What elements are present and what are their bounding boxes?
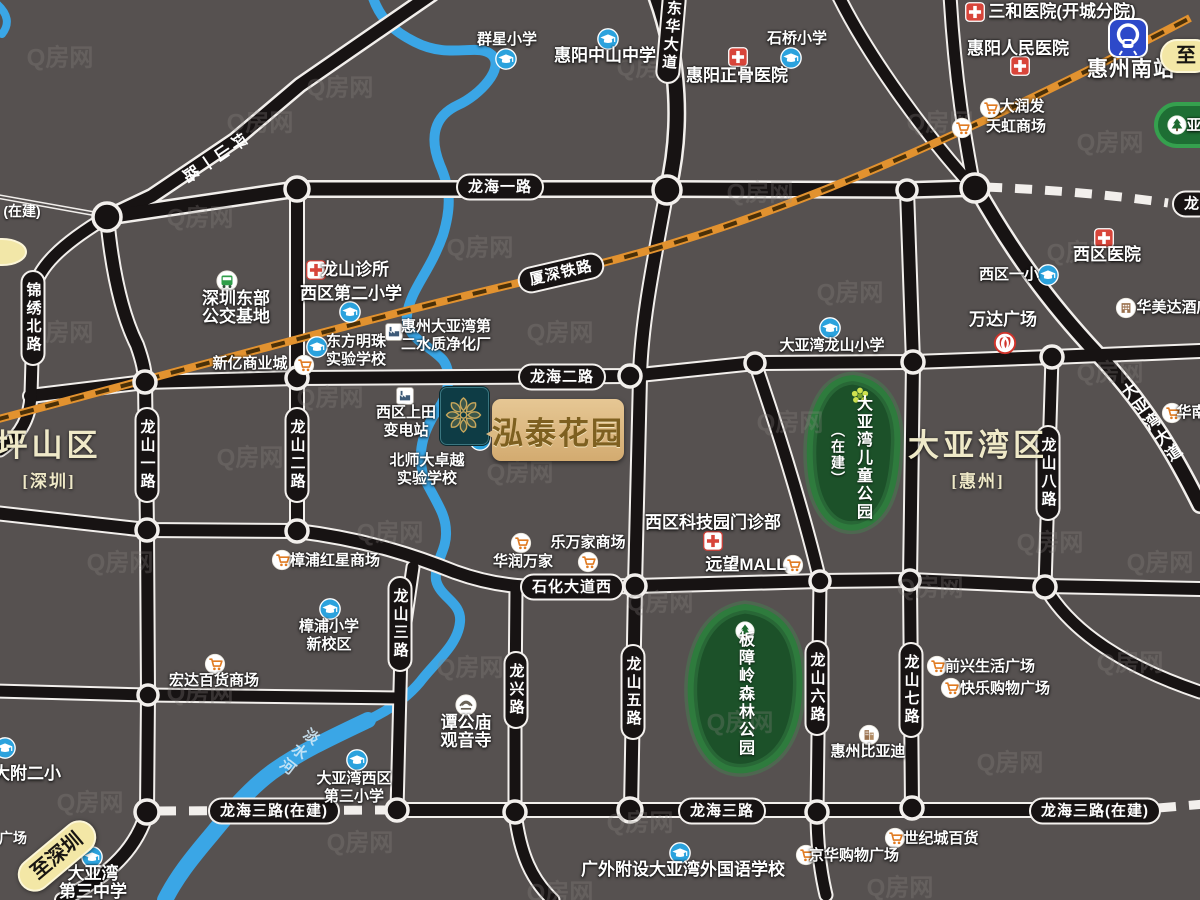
map-text-fragment: 广场: [0, 828, 27, 848]
project-bubble: 泓泰花园: [492, 399, 624, 461]
watermark: Q房网: [307, 68, 374, 103]
school-icon: [0, 737, 16, 759]
watermark: Q房网: [57, 783, 124, 818]
park-label: 亚: [1186, 117, 1200, 135]
tree-icon: [1167, 115, 1187, 135]
watermark: Q房网: [757, 403, 824, 438]
direction-banner: 至: [1160, 39, 1200, 73]
poi-label: 北师大卓越实验学校: [389, 452, 464, 488]
road-label: 坪山一路: [174, 125, 250, 187]
road-label: 龙兴路: [504, 651, 529, 729]
school-icon: [495, 48, 517, 70]
poi-label: 大附二小: [0, 765, 61, 783]
poi-label: 大润发: [999, 98, 1044, 116]
poi-label: 快乐购物广场: [960, 680, 1050, 698]
hospital-icon: [965, 2, 986, 23]
watermark: Q房网: [627, 583, 694, 618]
wanda-icon: [994, 332, 1017, 355]
poi-label: 群星小学: [477, 31, 537, 49]
poi-label: 大亚湾西区第三小学: [316, 770, 391, 806]
poi-label: 华美达酒店: [1136, 299, 1200, 317]
poi-label: 西区科技园门诊部: [645, 514, 781, 532]
poi-label: 龙山诊所: [321, 261, 389, 279]
railway-station-icon: [1108, 18, 1148, 58]
watermark: Q房网: [327, 823, 394, 858]
road-label: 东华大道: [654, 0, 687, 85]
road-label: 龙: [1172, 191, 1200, 218]
watermark: Q房网: [447, 228, 514, 263]
road-label: 锦绣北路: [21, 270, 46, 366]
road-label: 大亚湾大道: [1113, 378, 1187, 470]
watermark: Q房网: [727, 173, 794, 208]
poi-label: 石桥小学: [767, 30, 827, 48]
park-label-note: （在建）: [828, 423, 848, 487]
poi-label: 万达广场: [969, 311, 1037, 329]
poi-label: 樟浦小学新校区: [299, 618, 359, 654]
poi-label: 西区医院: [1073, 246, 1141, 264]
road-label: 龙山五路: [621, 644, 646, 740]
poi-label: 广外附设大亚湾外国语学校: [581, 861, 785, 879]
poi-label: 华南城: [1176, 404, 1200, 422]
poi-label: 前兴生活广场: [945, 658, 1035, 676]
watermark: Q房网: [977, 743, 1044, 778]
park-label: 板障岭森林公园: [732, 631, 756, 757]
cart-icon: [941, 678, 962, 699]
poi-label: 天虹商场: [986, 118, 1046, 136]
poi-label: 樟浦红星商场: [290, 552, 380, 570]
watermark: Q房网: [1017, 523, 1084, 558]
poi-label: 大亚湾龙山小学: [779, 337, 884, 355]
poi-label: 远望MALL: [705, 556, 786, 574]
poi-label: 深圳东部公交基地: [202, 290, 270, 326]
road-label: 龙山七路: [899, 642, 924, 738]
poi-label: 东方明珠实验学校: [326, 333, 386, 369]
watermark: Q房网: [167, 198, 234, 233]
watermark: Q房网: [1097, 643, 1164, 678]
road-label: 龙海三路: [678, 798, 766, 825]
watermark: Q房网: [297, 378, 364, 413]
poi-label: 西区第二小学: [300, 285, 402, 303]
poi-label: 西区一小: [979, 266, 1039, 284]
cart-icon: [885, 828, 906, 849]
park-label: 大亚湾儿童公园: [850, 395, 874, 521]
school-icon: [1037, 264, 1059, 286]
road-label: 龙海三路(在建): [1029, 798, 1161, 825]
poi-label: 宏达百货商场: [169, 672, 259, 690]
road-label: 龙海一路: [456, 174, 544, 201]
poi-label: 大亚湾第三中学: [59, 865, 127, 900]
watermark: Q房网: [87, 543, 154, 578]
hospital-icon: [1010, 56, 1031, 77]
map-canvas[interactable]: Q房网Q房网Q房网Q房网Q房网Q房网Q房网Q房网Q房网Q房网Q房网Q房网Q房网Q…: [0, 0, 1200, 900]
poi-label: 京华购物广场: [809, 847, 899, 865]
cart-icon: [952, 118, 973, 139]
hotel-icon: [1116, 298, 1137, 319]
watermark: Q房网: [27, 38, 94, 73]
watermark: Q房网: [437, 648, 504, 683]
watermark: Q房网: [357, 513, 424, 548]
cart-icon: [511, 533, 532, 554]
hospital-icon: [728, 47, 749, 68]
poi-label: 惠阳中山中学: [554, 47, 656, 65]
road-label: 龙山一路: [135, 407, 160, 503]
cart-icon: [294, 355, 315, 376]
watermark: Q房网: [527, 313, 594, 348]
school-icon: [319, 598, 341, 620]
project-name: 泓泰花园: [492, 399, 624, 461]
poi-label: 乐万家商场: [550, 534, 625, 552]
district-label: 大亚湾区[惠州]: [908, 420, 1048, 492]
factory-icon: [396, 387, 415, 406]
poi-label: 惠阳正骨医院: [686, 67, 788, 85]
road-label: 厦深铁路: [515, 250, 607, 296]
poi-label: 新亿商业城: [212, 355, 287, 373]
cart-icon: [578, 552, 599, 573]
school-icon: [346, 749, 368, 771]
poi-label: 世纪城百货: [903, 830, 978, 848]
poi-label: 华润万家: [493, 553, 553, 571]
district-label: 坪山区[深圳]: [0, 420, 102, 492]
watermark: Q房网: [817, 273, 884, 308]
school-icon: [339, 301, 361, 323]
poi-label: 谭公庙观音寺: [441, 714, 492, 750]
watermark: Q房网: [897, 568, 964, 603]
poi-label: 惠州大亚湾第二水质净化厂: [401, 318, 491, 354]
school-icon: [819, 317, 841, 339]
poi-label: 西区上田变电站: [376, 404, 436, 440]
road-label: 龙山二路: [285, 407, 310, 503]
poi-label: 惠州比亚迪: [830, 743, 905, 761]
road-label: 龙海二路: [518, 364, 606, 391]
poi-label: 惠阳人民医院: [967, 40, 1069, 58]
road-label: 龙山六路: [805, 640, 830, 736]
map-text-fragment: (在建): [3, 201, 40, 221]
road-label: 石化大道西: [520, 574, 624, 601]
watermark: Q房网: [1077, 123, 1144, 158]
watermark: Q房网: [867, 868, 934, 900]
cart-icon: [980, 98, 1001, 119]
road-label: 龙山三路: [388, 576, 413, 672]
clinic-icon: [703, 531, 724, 552]
watermark: Q房网: [217, 438, 284, 473]
watermark: Q房网: [607, 803, 674, 838]
watermark: Q房网: [1127, 543, 1194, 578]
